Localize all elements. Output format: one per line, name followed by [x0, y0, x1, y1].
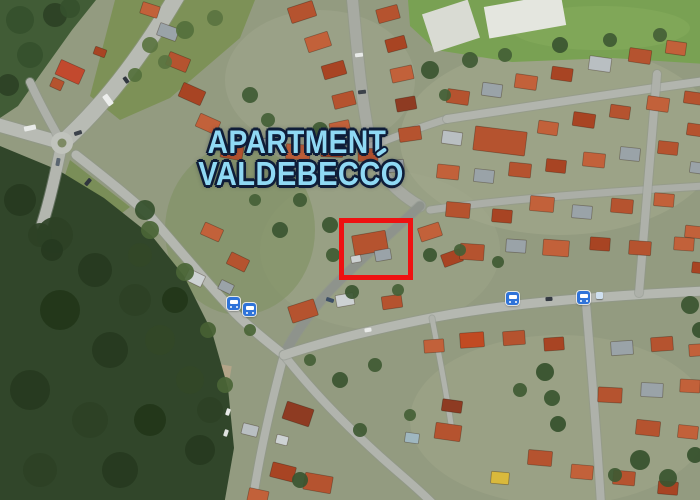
house-roof: [424, 339, 445, 353]
tree-canopy: [72, 402, 108, 438]
house-roof: [588, 56, 612, 73]
small-map-marker: [596, 292, 603, 299]
bus-glyph-wheel: [230, 306, 232, 308]
house-roof: [551, 66, 574, 82]
house-roof: [398, 126, 422, 143]
vehicle: [355, 53, 363, 58]
house-roof: [441, 399, 462, 414]
house-roof: [609, 104, 631, 120]
tree-canopy: [23, 453, 57, 487]
house-roof: [508, 162, 531, 178]
tree-canopy: [197, 397, 223, 423]
house-roof: [665, 40, 687, 56]
tree-canopy: [141, 221, 159, 239]
bus-glyph-wheel: [252, 312, 254, 314]
bus-stop-icon: [577, 291, 590, 304]
tree-canopy: [10, 370, 50, 410]
tree-canopy: [681, 296, 699, 314]
tree-canopy: [40, 290, 80, 330]
house-roof: [651, 336, 674, 352]
tree-canopy: [92, 332, 128, 368]
tree-canopy: [119, 284, 151, 316]
tree-canopy: [176, 263, 194, 281]
house-roof: [590, 237, 611, 251]
house-roof: [473, 168, 494, 183]
tree-canopy: [200, 322, 216, 338]
house-roof: [691, 262, 700, 275]
house-roof: [689, 161, 700, 174]
house-roof: [683, 91, 700, 105]
tree-canopy: [293, 193, 307, 207]
house-roof: [611, 340, 634, 356]
house-roof: [674, 237, 695, 251]
bus-glyph-window: [246, 306, 254, 310]
tree-canopy: [185, 435, 215, 465]
tree-canopy: [249, 194, 261, 206]
tree-canopy: [242, 87, 258, 103]
tree-canopy: [17, 42, 43, 68]
house-roof: [570, 464, 593, 480]
house-roof: [571, 205, 592, 220]
house-roof: [537, 120, 559, 136]
bus-glyph-window: [580, 294, 588, 298]
house-roof: [514, 74, 538, 91]
tree-canopy: [102, 452, 138, 488]
tree-canopy: [421, 61, 439, 79]
tree-canopy: [128, 243, 152, 267]
tree-canopy: [158, 55, 172, 69]
tree-canopy: [135, 200, 155, 220]
house-roof: [680, 379, 700, 393]
tree-canopy: [326, 248, 340, 262]
bus-glyph-wheel: [515, 301, 517, 303]
house-roof: [629, 240, 652, 256]
tree-canopy: [207, 10, 223, 26]
tree-canopy: [653, 28, 667, 42]
tree-canopy: [304, 354, 316, 366]
roundabout-island: [58, 139, 67, 148]
bus-stop-icon: [243, 303, 256, 316]
tree-canopy: [162, 287, 188, 313]
tree-canopy: [630, 450, 650, 470]
bus-glyph-wheel: [236, 306, 238, 308]
bus-glyph-window: [230, 300, 238, 304]
house-roof: [684, 225, 700, 239]
house-roof: [503, 330, 526, 346]
house-roof: [628, 48, 652, 65]
tree-canopy: [272, 222, 288, 238]
tree-canopy: [78, 253, 112, 287]
vehicle: [545, 297, 552, 301]
tree-canopy: [439, 89, 451, 101]
house-roof: [677, 424, 698, 439]
tree-canopy: [41, 239, 63, 261]
tree-canopy: [368, 358, 382, 372]
house-roof: [610, 198, 633, 214]
tree-canopy: [4, 184, 36, 216]
tree-canopy: [217, 377, 233, 393]
tree-canopy: [176, 366, 204, 394]
house-roof: [381, 294, 403, 310]
tree-canopy: [353, 423, 367, 437]
house-roof: [460, 332, 485, 349]
house-roof: [582, 152, 605, 168]
tree-canopy: [544, 390, 560, 406]
tree-canopy: [392, 284, 404, 296]
tree-canopy: [498, 48, 512, 62]
tree-canopy: [513, 383, 527, 397]
house-roof: [529, 195, 554, 212]
tree-canopy: [423, 248, 437, 262]
bus-glyph-wheel: [586, 300, 588, 302]
house-roof: [491, 209, 512, 224]
tree-canopy: [454, 244, 466, 256]
tree-canopy: [404, 409, 416, 421]
tree-canopy: [552, 37, 568, 53]
bus-stop-icon: [506, 292, 519, 305]
house-roof: [404, 432, 419, 444]
vehicle: [358, 90, 366, 95]
house-roof: [572, 112, 596, 129]
tree-canopy: [603, 33, 617, 47]
house-roof: [641, 382, 664, 397]
tree-canopy: [244, 324, 256, 336]
satellite-map-image: APARTMENT VALDEBECCO: [0, 0, 700, 500]
house-roof: [689, 343, 700, 356]
tree-canopy: [142, 37, 158, 53]
house-roof: [635, 419, 660, 436]
house-roof: [506, 239, 527, 253]
tree-canopy: [128, 68, 142, 82]
bus-glyph-window: [509, 295, 517, 299]
tree-canopy: [462, 52, 478, 68]
tree-canopy: [659, 469, 677, 487]
tree-canopy: [608, 468, 622, 482]
house-roof: [434, 422, 462, 441]
tree-canopy: [176, 21, 194, 39]
tree-canopy: [345, 285, 359, 299]
house-roof: [445, 201, 470, 218]
house-roof: [657, 140, 678, 155]
tree-canopy: [292, 472, 308, 488]
house-roof: [542, 239, 569, 257]
map-label-line1: APARTMENT: [208, 126, 387, 158]
tree-canopy: [492, 256, 504, 268]
house-roof: [481, 82, 503, 98]
map-label-line2: VALDEBECCO: [198, 157, 404, 190]
tree-canopy: [550, 416, 566, 432]
tree-canopy: [145, 325, 175, 355]
house-roof: [619, 146, 640, 161]
tree-canopy: [536, 363, 554, 381]
house-roof: [686, 123, 700, 137]
house-roof: [441, 130, 463, 146]
house-roof: [653, 193, 674, 208]
house-roof: [491, 471, 510, 485]
house-roof: [527, 449, 552, 466]
bus-stop-icon: [227, 297, 240, 310]
bus-glyph-wheel: [580, 300, 582, 302]
house-roof: [544, 337, 565, 351]
tree-canopy: [322, 217, 338, 233]
tree-canopy: [332, 372, 348, 388]
house-roof: [436, 164, 459, 180]
tree-canopy: [134, 404, 166, 436]
tree-canopy: [6, 6, 34, 34]
house-roof: [598, 387, 623, 403]
highlight-rectangle: [339, 218, 413, 280]
bus-glyph-wheel: [509, 301, 511, 303]
house-roof: [646, 96, 670, 113]
bus-glyph-wheel: [246, 312, 248, 314]
house-roof: [545, 158, 566, 173]
